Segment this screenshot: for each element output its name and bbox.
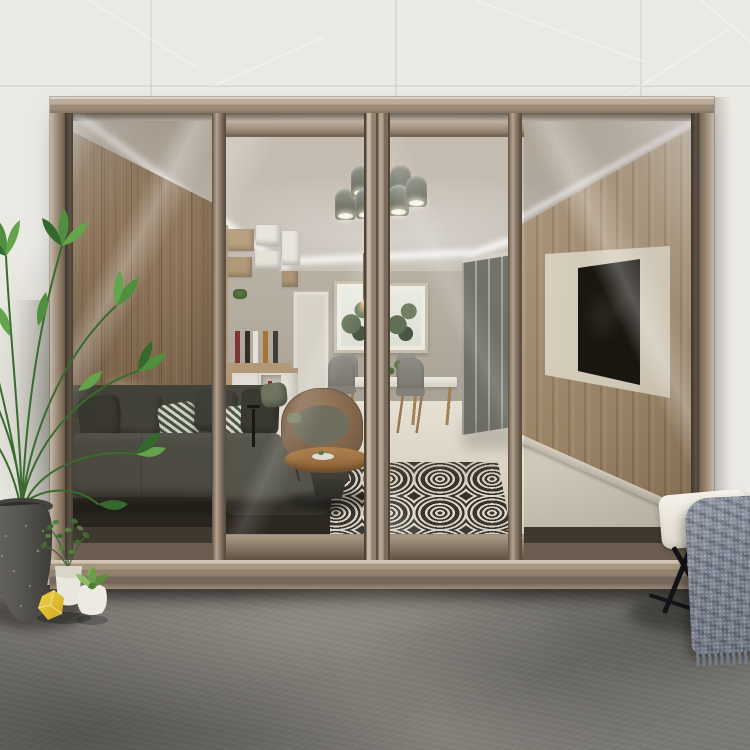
shelf-cube-wood	[228, 229, 254, 251]
wall-vein	[686, 0, 750, 47]
shelf-cube-wood	[228, 257, 252, 277]
chandelier-bell-shade	[335, 189, 356, 220]
slider-stile-right[interactable]	[508, 113, 522, 560]
decor-bottles	[233, 331, 281, 365]
tv-feature-wall	[520, 113, 699, 523]
shelf-cube-wood	[282, 271, 298, 287]
dining-table-legs	[335, 387, 452, 425]
chandelier-bell-shade	[406, 176, 427, 207]
rattan-armchair	[281, 388, 363, 462]
coffee-table-dish	[312, 453, 334, 460]
dining-table-top	[331, 377, 457, 387]
wall-vein	[475, 0, 645, 63]
chandelier-bell-shade	[388, 185, 409, 216]
sofa-chaise	[225, 441, 331, 515]
black-candelabra	[252, 409, 255, 447]
dining-chair-back-row	[337, 353, 358, 381]
patio-living-room-photo	[0, 0, 750, 750]
table-decor	[407, 371, 411, 377]
wall-vein	[611, 28, 730, 106]
gray-throw-blanket	[684, 495, 750, 655]
dining-chair-front	[328, 356, 355, 390]
shelf-plant	[233, 289, 247, 299]
coffee-table-base	[307, 469, 351, 497]
cove-light-over-tv-wall	[516, 116, 699, 221]
sofa-pillow	[240, 388, 280, 435]
rattan-chair-cushion	[292, 403, 351, 447]
floor-reflection	[526, 404, 699, 493]
television	[578, 259, 640, 385]
slider-meeting-stiles[interactable]	[364, 113, 390, 560]
chandelier-bell-shade	[390, 165, 411, 196]
shelf-cube-white	[256, 225, 280, 245]
wall-tile-seam	[395, 0, 397, 97]
black-candelabra-arms	[247, 405, 260, 408]
coffee-table-top	[284, 447, 370, 473]
shelf-cube-white-tall	[282, 231, 300, 265]
wall-vein	[215, 36, 325, 87]
lower-cabinet	[225, 368, 298, 485]
sofa-pillow-green	[260, 382, 288, 409]
shelf-cube-white	[255, 251, 281, 269]
dining-chair-front	[397, 358, 424, 392]
coffee-table-plant	[318, 451, 324, 455]
red-book	[268, 381, 272, 397]
interior-light-spill	[235, 588, 525, 634]
cabinet-open-nook	[261, 375, 281, 401]
wall-vein	[71, 0, 199, 70]
small-potted-plants-group	[34, 502, 110, 628]
dining-chair-back-row	[396, 353, 417, 381]
tv-backing-panel	[545, 246, 670, 399]
cabinet-top	[225, 363, 291, 368]
wall-tile-seam	[150, 0, 152, 97]
rattan-chair-legs	[292, 455, 350, 481]
door-frame-head	[50, 97, 714, 113]
hallway-door	[293, 291, 329, 423]
wall-tile-seam	[640, 0, 642, 97]
rattan-chair-throw	[287, 413, 301, 423]
